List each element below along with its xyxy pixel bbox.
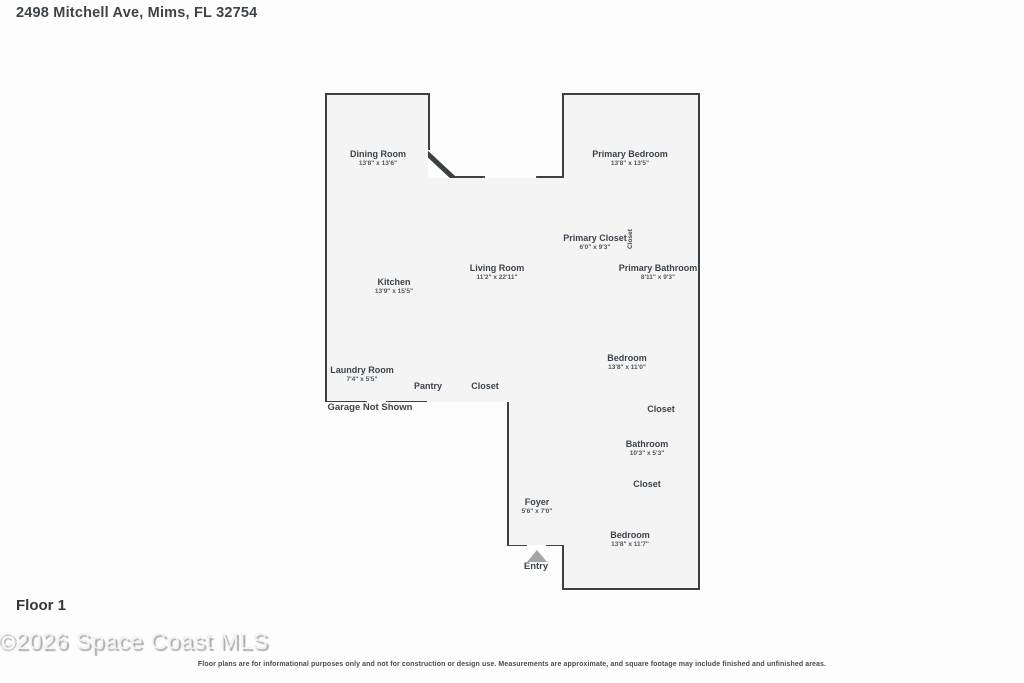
room-label-dining-room: Dining Room 13'8" x 13'6" xyxy=(350,149,406,168)
room-name: Bedroom xyxy=(610,530,650,540)
room-dims: 13'8" x 13'5" xyxy=(592,160,668,167)
room-name: Primary Bathroom xyxy=(619,263,698,273)
room-name: Bathroom xyxy=(626,439,669,449)
room-name: Closet xyxy=(633,479,661,489)
room-label-bedroom-closet: Closet xyxy=(647,404,675,414)
room-label-hall-closet: Closet xyxy=(471,381,499,391)
room-name: Living Room xyxy=(470,263,525,273)
room-name: Primary Closet xyxy=(563,233,627,243)
room-label-closet-vertical: Closet xyxy=(625,225,637,253)
room-label-primary-bedroom: Primary Bedroom 13'8" x 13'5" xyxy=(592,149,668,168)
floor-label: Floor 1 xyxy=(16,597,66,614)
entry-label: Entry xyxy=(524,562,548,573)
room-dims: 10'3" x 5'3" xyxy=(626,450,669,457)
room-label-bathroom: Bathroom 10'3" x 5'3" xyxy=(626,439,669,458)
room-name: Dining Room xyxy=(350,149,406,159)
room-label-laundry-room: Laundry Room 7'4" x 5'5" xyxy=(330,365,394,384)
room-name: Laundry Room xyxy=(330,365,394,375)
room-label-primary-closet: Primary Closet 6'0" x 9'3" xyxy=(563,233,627,252)
garage-note: Garage Not Shown xyxy=(328,403,413,414)
room-name: Primary Bedroom xyxy=(592,149,668,159)
room-dims: 6'0" x 9'3" xyxy=(563,244,627,251)
room-dims: 13'9" x 15'5" xyxy=(375,288,413,295)
room-label-kitchen: Kitchen 13'9" x 15'5" xyxy=(375,277,413,296)
room-dims: 11'2" x 22'11" xyxy=(470,274,525,281)
room-floor xyxy=(327,95,428,352)
room-dims: 8'11" x 9'3" xyxy=(619,274,698,281)
room-name: Closet xyxy=(471,381,499,391)
floor-plan: Dining Room 13'8" x 13'6" Primary Bedroo… xyxy=(0,0,1024,683)
room-name: Closet xyxy=(647,404,675,414)
disclaimer: Floor plans are for informational purpos… xyxy=(0,661,1024,668)
room-label-foyer: Foyer 5'6" x 7'0" xyxy=(522,497,553,516)
room-dims: 13'8" x 13'6" xyxy=(350,160,406,167)
room-dims: 7'4" x 5'5" xyxy=(330,376,394,383)
watermark: ©2026 Space Coast MLS xyxy=(0,628,268,655)
room-label-primary-bathroom: Primary Bathroom 8'11" x 9'3" xyxy=(619,263,698,282)
room-name: Kitchen xyxy=(375,277,413,287)
room-name: Pantry xyxy=(414,381,442,391)
room-label-bedroom-middle: Bedroom 13'8" x 11'0" xyxy=(607,353,647,372)
room-name: Foyer xyxy=(522,497,553,507)
room-dims: 13'8" x 11'0" xyxy=(607,364,647,371)
room-dims: 5'6" x 7'0" xyxy=(522,508,553,515)
room-label-living-room: Living Room 11'2" x 22'11" xyxy=(470,263,525,282)
room-dims: 13'8" x 11'7" xyxy=(610,541,650,548)
room-label-closet-lower: Closet xyxy=(633,479,661,489)
room-name: Bedroom xyxy=(607,353,647,363)
room-floor xyxy=(427,178,564,402)
room-label-pantry: Pantry xyxy=(414,381,442,391)
room-label-bedroom-lower: Bedroom 13'8" x 11'7" xyxy=(610,530,650,549)
room-floor xyxy=(564,95,698,588)
